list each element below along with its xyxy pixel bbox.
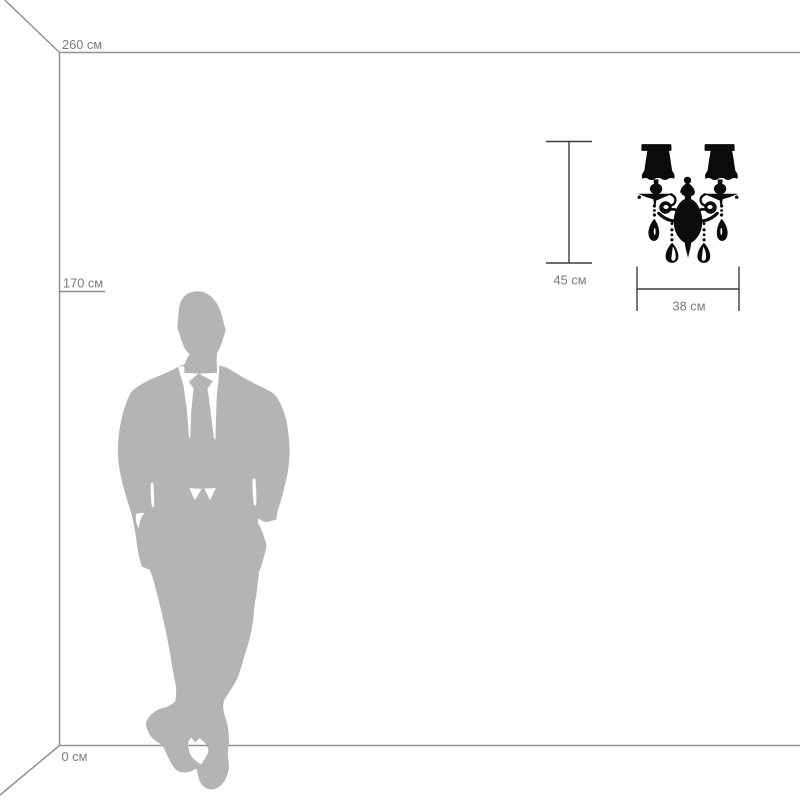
svg-text:170 см: 170 см — [63, 275, 103, 290]
svg-text:38 см: 38 см — [673, 298, 706, 313]
svg-text:0 см: 0 см — [62, 749, 88, 764]
svg-text:45 см: 45 см — [554, 272, 587, 287]
svg-text:260 см: 260 см — [62, 37, 102, 52]
